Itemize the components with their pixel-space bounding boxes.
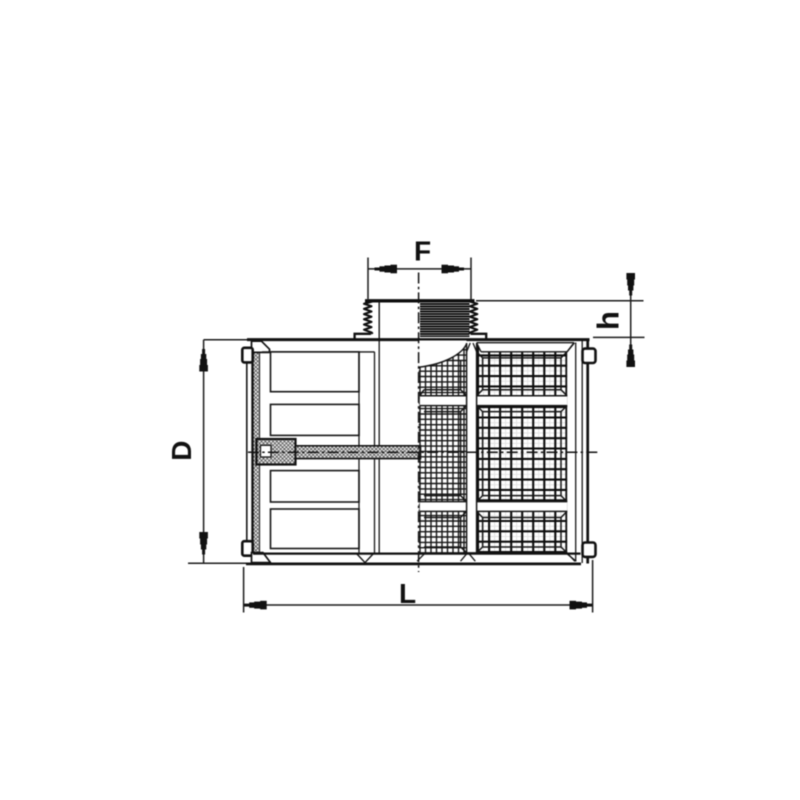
svg-text:h: h — [591, 311, 626, 330]
svg-text:F: F — [414, 236, 431, 267]
svg-text:D: D — [166, 441, 197, 461]
svg-text:L: L — [399, 578, 416, 609]
